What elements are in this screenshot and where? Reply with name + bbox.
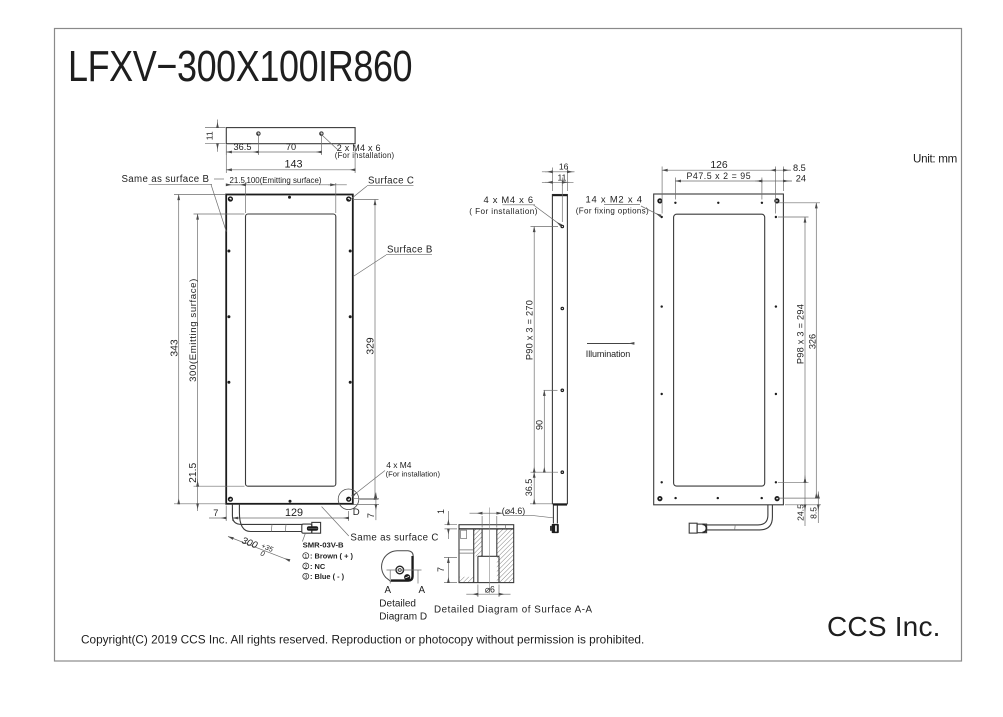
svg-text:16: 16 bbox=[559, 162, 569, 172]
svg-text:Illumination: Illumination bbox=[586, 349, 630, 359]
svg-text:: Blue ( - ): : Blue ( - ) bbox=[310, 572, 345, 581]
svg-text:( For installation): ( For installation) bbox=[469, 207, 538, 216]
svg-text:300(Emitting surface): 300(Emitting surface) bbox=[188, 278, 199, 382]
svg-text:P90 x 3 = 270: P90 x 3 = 270 bbox=[524, 300, 534, 360]
svg-text:Copyright(C) 2019 CCS Inc. All: Copyright(C) 2019 CCS Inc. All rights re… bbox=[81, 633, 644, 647]
svg-text:24.5: 24.5 bbox=[796, 504, 806, 521]
svg-text:P98 x 3 = 294: P98 x 3 = 294 bbox=[795, 304, 805, 364]
svg-text:129: 129 bbox=[285, 507, 303, 519]
svg-text:P47.5 x 2 = 95: P47.5 x 2 = 95 bbox=[686, 171, 751, 181]
svg-text:143: 143 bbox=[284, 159, 302, 171]
svg-text:21.5,: 21.5, bbox=[230, 176, 248, 185]
svg-text:4 x M4: 4 x M4 bbox=[386, 460, 411, 470]
svg-text:(⌀4.6): (⌀4.6) bbox=[502, 506, 525, 516]
svg-text:A: A bbox=[385, 585, 392, 596]
svg-text:A: A bbox=[419, 585, 426, 596]
svg-text:126: 126 bbox=[710, 160, 728, 171]
svg-text:3: 3 bbox=[304, 575, 307, 581]
svg-text:4 x M4 x 6: 4 x M4 x 6 bbox=[484, 194, 534, 205]
svg-text:Surface C: Surface C bbox=[368, 175, 414, 186]
svg-text:LFXV−300X100IR860: LFXV−300X100IR860 bbox=[68, 42, 412, 91]
svg-text:36.5: 36.5 bbox=[524, 479, 534, 497]
svg-text:Unit: mm: Unit: mm bbox=[913, 153, 957, 166]
svg-text:2: 2 bbox=[304, 564, 307, 570]
svg-text:: NC: : NC bbox=[310, 562, 326, 571]
svg-text:⌀6: ⌀6 bbox=[485, 584, 495, 594]
svg-text:8.5: 8.5 bbox=[793, 163, 806, 173]
svg-text:11: 11 bbox=[205, 131, 215, 140]
svg-text:SMR-03V-B: SMR-03V-B bbox=[303, 541, 344, 550]
svg-text:100(Emitting surface): 100(Emitting surface) bbox=[247, 176, 322, 185]
svg-text:(For installation): (For installation) bbox=[335, 151, 395, 160]
svg-text:326: 326 bbox=[807, 334, 817, 349]
svg-text:D: D bbox=[353, 507, 360, 518]
svg-text:1: 1 bbox=[304, 554, 307, 560]
svg-text:36.5: 36.5 bbox=[234, 142, 252, 152]
svg-text:7: 7 bbox=[366, 513, 376, 518]
svg-text:Surface B: Surface B bbox=[387, 244, 433, 255]
svg-text:24: 24 bbox=[796, 174, 806, 184]
svg-text:8.5: 8.5 bbox=[809, 507, 819, 519]
svg-text:Diagram D: Diagram D bbox=[379, 612, 427, 623]
svg-text:90: 90 bbox=[534, 420, 544, 430]
svg-text:7: 7 bbox=[213, 508, 218, 518]
svg-text:14 x M2 x 4: 14 x M2 x 4 bbox=[586, 194, 643, 205]
svg-text:70: 70 bbox=[286, 142, 296, 152]
svg-text:7: 7 bbox=[436, 567, 446, 572]
svg-text:: Brown ( + ): : Brown ( + ) bbox=[310, 552, 353, 561]
svg-text:Same as surface C: Same as surface C bbox=[350, 532, 438, 543]
svg-text:CCS Inc.: CCS Inc. bbox=[827, 611, 941, 642]
svg-text:343: 343 bbox=[169, 339, 180, 356]
svg-text:11: 11 bbox=[558, 172, 567, 182]
svg-text:(For installation): (For installation) bbox=[386, 469, 441, 478]
svg-text:1: 1 bbox=[436, 509, 446, 514]
svg-text:Detailed: Detailed bbox=[379, 599, 416, 610]
svg-text:21.5: 21.5 bbox=[188, 463, 199, 483]
svg-text:Detailed Diagram of Surface A-: Detailed Diagram of Surface A-A bbox=[434, 605, 593, 616]
svg-text:Same as surface B: Same as surface B bbox=[122, 174, 210, 185]
svg-text:(For fixing options): (For fixing options) bbox=[576, 206, 649, 215]
svg-text:329: 329 bbox=[365, 337, 376, 354]
